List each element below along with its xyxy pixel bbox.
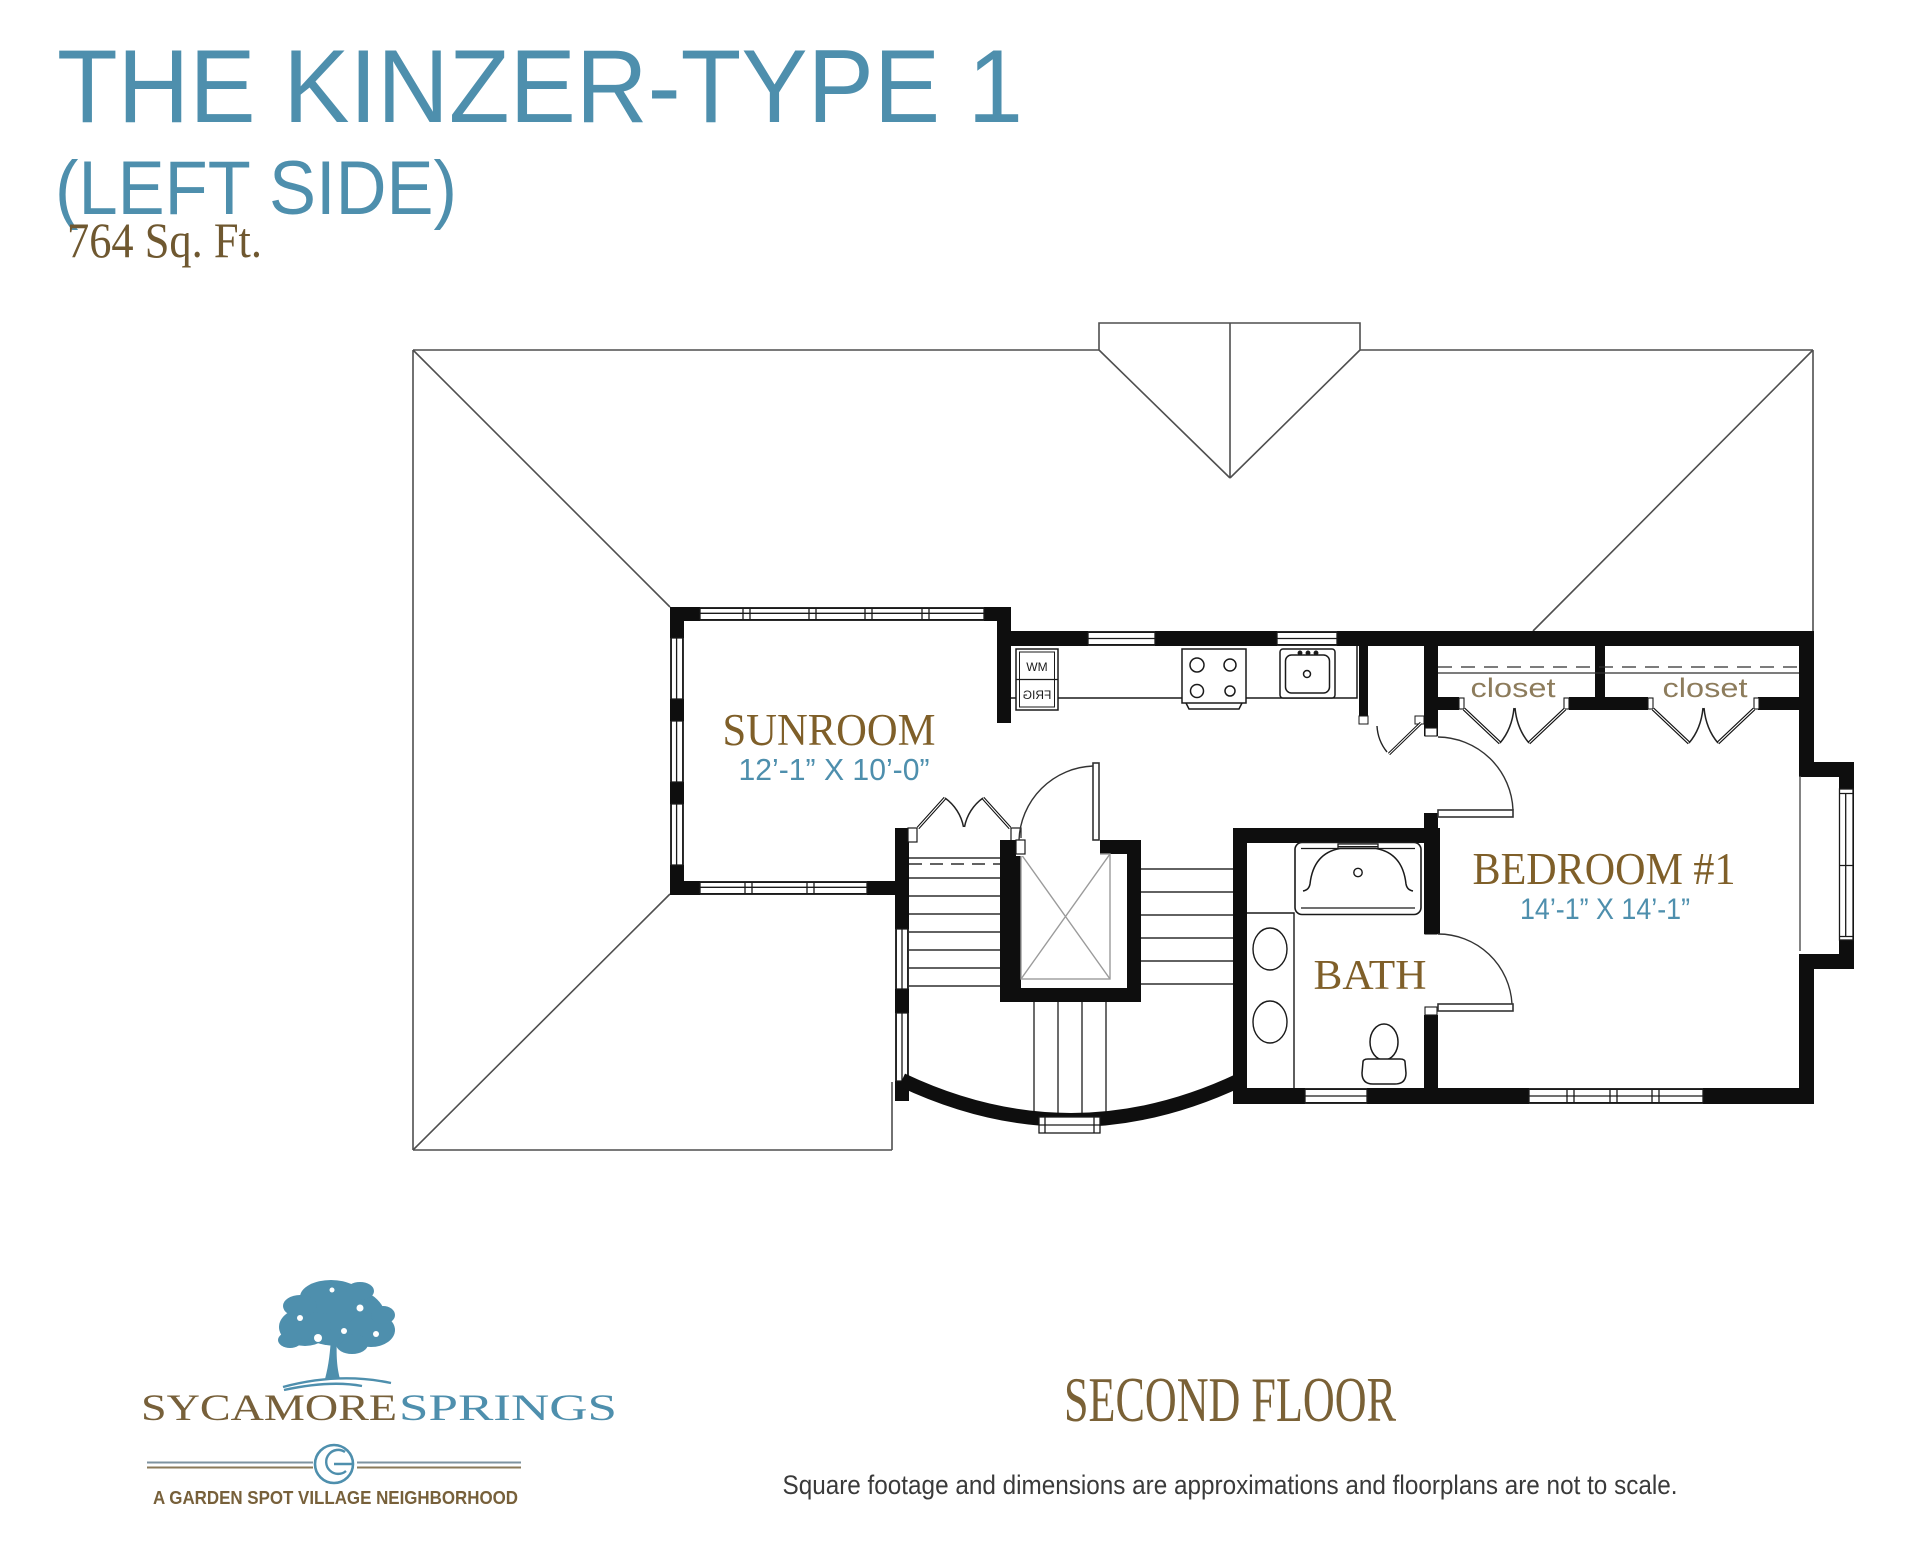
svg-text:BATH: BATH <box>1314 953 1427 999</box>
svg-text:Square footage and dimensions: Square footage and dimensions are approx… <box>783 1470 1678 1500</box>
svg-text:SUNROOM: SUNROOM <box>723 705 936 755</box>
svg-text:12’-1” X 10’-0”: 12’-1” X 10’-0” <box>739 752 930 787</box>
svg-text:FRIG: FRIG <box>1023 688 1052 702</box>
svg-text:closet: closet <box>1663 673 1749 703</box>
svg-text:closet: closet <box>1471 673 1557 703</box>
svg-text:SECOND FLOOR: SECOND FLOOR <box>1064 1365 1396 1435</box>
svg-text:MW: MW <box>1026 660 1048 674</box>
svg-text:SPRINGS: SPRINGS <box>399 1388 617 1429</box>
svg-text:THE KINZER-TYPE 1: THE KINZER-TYPE 1 <box>57 29 1023 145</box>
svg-text:764 Sq. Ft.: 764 Sq. Ft. <box>67 212 262 268</box>
svg-text:SYCAMORE: SYCAMORE <box>141 1388 397 1429</box>
svg-text:BEDROOM #1: BEDROOM #1 <box>1473 843 1736 894</box>
svg-text:A GARDEN SPOT VILLAGE NEIGHBOR: A GARDEN SPOT VILLAGE NEIGHBORHOOD <box>153 1488 518 1508</box>
svg-text:14’-1” X 14’-1”: 14’-1” X 14’-1” <box>1520 893 1690 926</box>
